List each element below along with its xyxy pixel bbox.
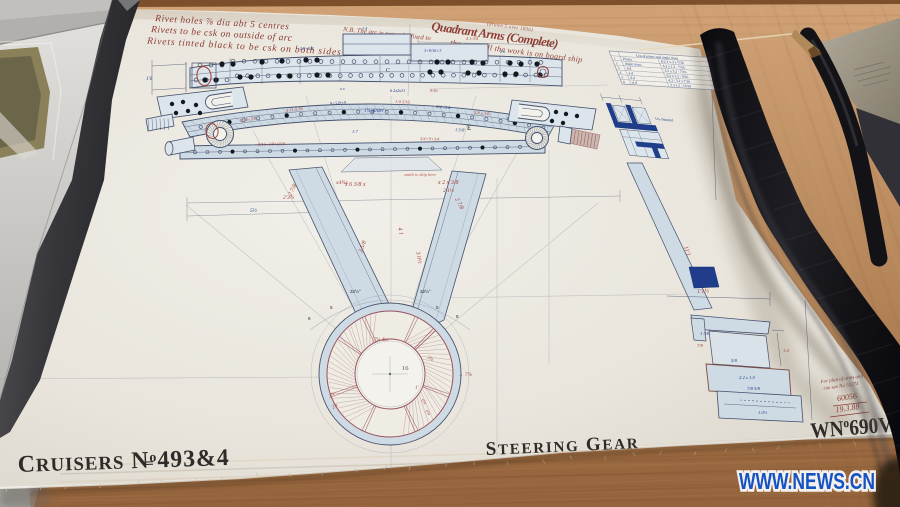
svg-text:x4¾x: x4¾x (335, 179, 348, 186)
svg-text:6 2x2x31: 6 2x2x31 (390, 88, 405, 93)
svg-text:32½°: 32½° (420, 288, 431, 294)
svg-text:C: C (386, 68, 390, 74)
svg-text:2.2 x 1.0: 2.2 x 1.0 (739, 375, 756, 380)
svg-text:32½°: 32½° (350, 288, 361, 294)
svg-text:5: 5 (330, 305, 333, 310)
svg-text:7/8: 7/8 (697, 343, 704, 348)
svg-text:E: E (467, 124, 471, 132)
svg-text:smith to ship here: smith to ship here (404, 172, 436, 177)
svg-text:7/8 5/8: 7/8 5/8 (747, 386, 761, 391)
svg-text:1 4: 1 4 (362, 26, 367, 31)
svg-text:3/4+3/4: 3/4+3/4 (436, 104, 451, 110)
svg-text:1:0 5/16: 1:0 5/16 (395, 99, 411, 105)
svg-text:8: 8 (456, 314, 459, 319)
svg-text:3/4+9+3/4: 3/4+9+3/4 (420, 136, 440, 142)
svg-text:5/8: 5/8 (731, 358, 738, 363)
svg-text:7¼ dia: 7¼ dia (374, 338, 388, 343)
svg-text:2 6: 2 6 (500, 49, 506, 54)
svg-text:2′1½: 2′1½ (443, 187, 454, 194)
svg-text:2′3¾: 2′3¾ (283, 195, 294, 201)
svg-text:1:5/8: 1:5/8 (455, 127, 465, 133)
svg-text:4 1:3/4: 4 1:3/4 (466, 36, 478, 41)
svg-text:x 2 x 3/8: x 2 x 3/8 (437, 180, 459, 186)
svg-text:5½: 5½ (250, 207, 257, 214)
svg-text:1.0½: 1.0½ (758, 410, 768, 415)
svg-text:9/16+3/8+9/16: 9/16+3/8+9/16 (258, 141, 286, 147)
svg-text:WWW.NEWS.CN: WWW.NEWS.CN (739, 468, 875, 494)
svg-text:5/8+5/8: 5/8+5/8 (300, 46, 314, 51)
svg-text:1.4: 1.4 (783, 348, 789, 353)
svg-text:16: 16 (402, 365, 409, 372)
svg-text:5: 5 (436, 305, 439, 310)
svg-text:1'6: 1'6 (146, 77, 153, 82)
svg-text:1¼ girder: 1¼ girder (364, 109, 384, 114)
svg-text:9/16: 9/16 (430, 88, 438, 93)
svg-text:1:7: 1:7 (352, 129, 359, 134)
svg-text:8: 8 (308, 316, 311, 321)
svg-text:x x: x x (339, 86, 345, 91)
svg-text:→ 7⅞: → 7⅞ (458, 372, 472, 378)
svg-text:1 5/8: 1 5/8 (700, 331, 710, 336)
svg-text:1′1½: 1′1½ (697, 288, 709, 295)
svg-text:3+9/16+3: 3+9/16+3 (424, 48, 441, 53)
